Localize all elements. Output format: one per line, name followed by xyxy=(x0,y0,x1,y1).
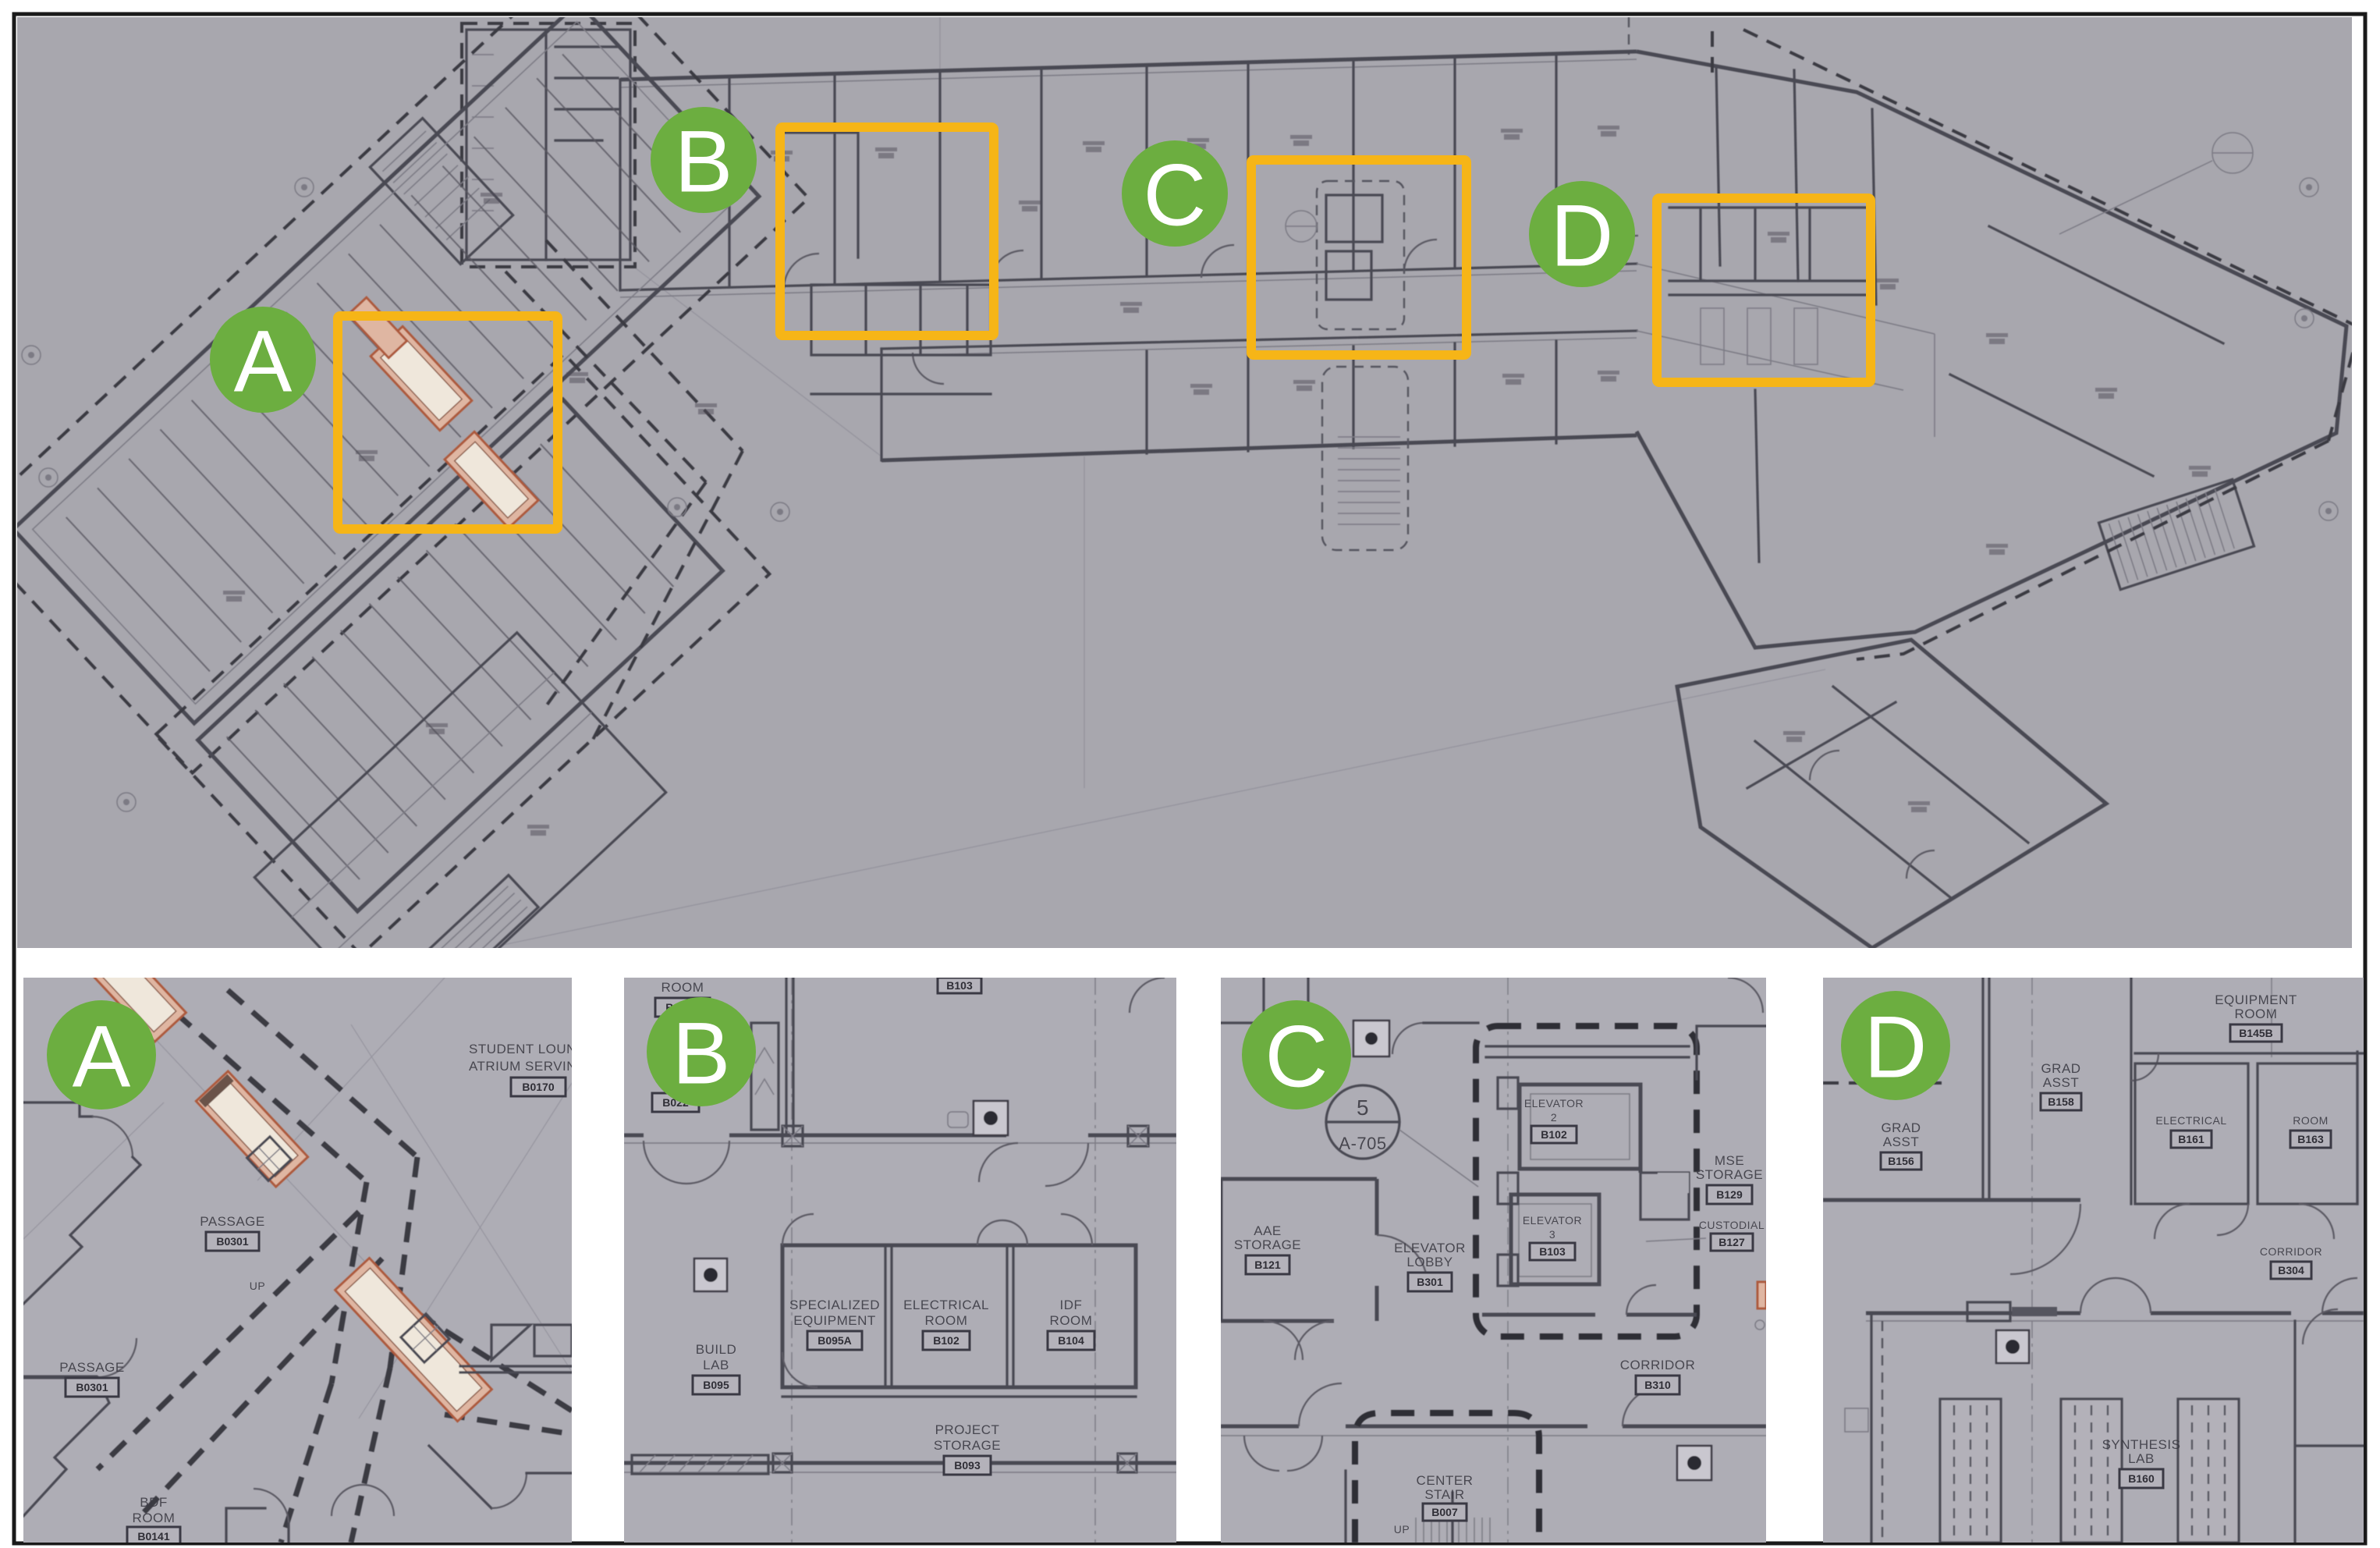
room-tag-b129: B129 xyxy=(1707,1185,1752,1204)
room-label-project-2: STORAGE xyxy=(934,1438,1001,1453)
region-letter-c: C xyxy=(1144,146,1207,243)
detail-panel-a: STUDENT LOUN ATRIUM SERVIN B0170 PASSAGE… xyxy=(23,944,576,1546)
room-tag-b104: B104 xyxy=(1048,1331,1094,1350)
svg-text:B161: B161 xyxy=(2178,1133,2204,1145)
svg-text:B095A: B095A xyxy=(818,1334,852,1347)
svg-text:B0170: B0170 xyxy=(522,1081,554,1093)
room-tag-b103-cut: B103 xyxy=(938,978,981,993)
svg-text:B304: B304 xyxy=(2278,1264,2304,1276)
room-tag-b304: B304 xyxy=(2271,1262,2311,1279)
room-label-synth-1: SYNTHESIS xyxy=(2102,1437,2181,1452)
callout-number: 5 xyxy=(1357,1095,1369,1120)
room-tag-b301: B301 xyxy=(1408,1273,1452,1291)
floor-plan-figure: A B C D xyxy=(0,0,2380,1548)
room-label-electrical-d: ELECTRICAL xyxy=(2155,1114,2226,1127)
svg-text:B102: B102 xyxy=(1541,1128,1567,1141)
svg-text:B0301: B0301 xyxy=(216,1235,248,1248)
svg-text:B127: B127 xyxy=(1718,1236,1745,1248)
room-tag-b095a: B095A xyxy=(807,1331,862,1350)
room-label-grad2-1: GRAD xyxy=(2041,1061,2080,1076)
room-label-bdf-2: ROOM xyxy=(133,1511,176,1525)
room-label-elevator2: ELEVATOR xyxy=(1524,1097,1584,1110)
svg-text:B103: B103 xyxy=(1539,1245,1566,1258)
room-tag-elev2: B102 xyxy=(1531,1126,1577,1143)
room-label-project-1: PROJECT xyxy=(935,1422,1000,1437)
svg-text:B145B: B145B xyxy=(2239,1027,2273,1039)
svg-text:B093: B093 xyxy=(954,1459,981,1472)
room-label-grad1-1: GRAD xyxy=(1881,1120,1921,1135)
room-tag-b161: B161 xyxy=(2171,1131,2212,1148)
room-label-electrical-2: ROOM xyxy=(925,1313,968,1328)
room-tag-passage-lower: B0301 xyxy=(66,1378,119,1397)
region-marker-b[interactable]: B xyxy=(651,107,757,213)
svg-text:B129: B129 xyxy=(1716,1188,1743,1201)
svg-text:B156: B156 xyxy=(1888,1155,1914,1167)
room-label-room-right: ROOM xyxy=(2293,1114,2329,1127)
room-label-elevator3-num: 3 xyxy=(1549,1228,1555,1241)
room-tag-b310: B310 xyxy=(1636,1376,1679,1394)
room-tag-b093: B093 xyxy=(944,1456,991,1475)
room-label-stair-2: STAIR xyxy=(1424,1487,1464,1502)
svg-text:B121: B121 xyxy=(1254,1259,1281,1271)
room-tag-b0170: B0170 xyxy=(511,1078,566,1096)
room-label-electrical-1: ELECTRICAL xyxy=(903,1298,989,1312)
room-label-build-lab-1: BUILD xyxy=(696,1342,737,1357)
room-label-mse-1: MSE xyxy=(1715,1153,1744,1168)
panel-marker-a[interactable]: A xyxy=(47,1000,156,1110)
svg-text:B103: B103 xyxy=(946,979,973,992)
region-marker-a[interactable]: A xyxy=(210,307,316,413)
room-label-specialized-2: EQUIPMENT xyxy=(793,1313,876,1328)
room-tag-elev3: B103 xyxy=(1530,1243,1575,1260)
room-tag-b121: B121 xyxy=(1246,1255,1289,1274)
room-tag-b007: B007 xyxy=(1423,1504,1467,1521)
svg-text:B160: B160 xyxy=(2128,1472,2155,1485)
panel-marker-b[interactable]: B xyxy=(647,997,756,1106)
panel-letter-b: B xyxy=(672,1004,731,1102)
region-letter-a: A xyxy=(234,312,293,410)
room-label-aae-1: AAE xyxy=(1254,1223,1282,1238)
svg-text:B163: B163 xyxy=(2297,1133,2324,1145)
overview-floor-plan: A B C D xyxy=(0,0,2360,1037)
room-label-grad1-2: ASST xyxy=(1883,1134,1919,1149)
svg-text:B095: B095 xyxy=(703,1379,729,1391)
svg-text:B310: B310 xyxy=(1644,1379,1671,1391)
room-label-idf-1: IDF xyxy=(1060,1298,1083,1312)
svg-text:B0301: B0301 xyxy=(76,1381,108,1394)
room-label-grad2-2: ASST xyxy=(2043,1075,2079,1090)
room-tag-b102: B102 xyxy=(923,1331,970,1350)
room-label-elevator3: ELEVATOR xyxy=(1523,1214,1582,1227)
room-label-corridor-d: CORRIDOR xyxy=(2260,1245,2322,1258)
room-label-atrium-serving: ATRIUM SERVIN xyxy=(469,1059,576,1074)
room-tag-b156: B156 xyxy=(1881,1152,1921,1170)
room-tag-b127: B127 xyxy=(1711,1234,1753,1251)
room-tag-b158: B158 xyxy=(2041,1093,2081,1110)
svg-text:B104: B104 xyxy=(1058,1334,1084,1347)
room-label-specialized-1: SPECIALIZED xyxy=(789,1298,880,1312)
region-letter-d: D xyxy=(1551,186,1614,284)
room-label-bdf-1: BDF xyxy=(140,1495,168,1510)
room-tag-b163: B163 xyxy=(2290,1131,2331,1148)
room-label-student-lounge: STUDENT LOUN xyxy=(469,1042,576,1056)
panel-letter-a: A xyxy=(73,1007,131,1105)
room-label-stair-1: CENTER xyxy=(1417,1473,1474,1488)
room-label-aae-2: STORAGE xyxy=(1234,1237,1301,1252)
detail-panel-b: ROOM B022A B022 B103 SPECIALIZED EQUIPME… xyxy=(624,978,1176,1543)
room-label-top-room: ROOM xyxy=(662,980,704,995)
room-label-custodial: CUSTODIAL xyxy=(1699,1219,1765,1231)
panel-letter-c: C xyxy=(1265,1007,1328,1105)
floor-plan-canvas: A B C D xyxy=(0,0,2380,1548)
room-label-elevator2-num: 2 xyxy=(1551,1111,1557,1124)
callout-sheet: A-705 xyxy=(1339,1134,1386,1153)
up-label: UP xyxy=(250,1280,265,1292)
region-marker-d[interactable]: D xyxy=(1529,181,1635,287)
room-label-passage-lower: PASSAGE xyxy=(59,1360,125,1375)
room-label-idf-2: ROOM xyxy=(1050,1313,1093,1328)
room-label-passage-upper: PASSAGE xyxy=(200,1214,265,1229)
room-tag-b145b: B145B xyxy=(2230,1024,2282,1042)
room-label-synth-2: LAB xyxy=(2128,1451,2155,1466)
room-tag-passage-upper: B0301 xyxy=(206,1232,259,1251)
room-label-mse-2: STORAGE xyxy=(1696,1167,1763,1182)
room-label-corridor: CORRIDOR xyxy=(1620,1358,1696,1372)
svg-text:B102: B102 xyxy=(933,1334,959,1347)
panel-letter-d: D xyxy=(1864,998,1928,1095)
svg-text:B158: B158 xyxy=(2048,1095,2074,1108)
room-label-build-lab-2: LAB xyxy=(703,1358,729,1372)
room-tag-b095: B095 xyxy=(693,1376,740,1394)
region-marker-c[interactable]: C xyxy=(1122,140,1228,247)
region-letter-b: B xyxy=(675,112,733,210)
panel-marker-d[interactable]: D xyxy=(1841,991,1950,1100)
room-label-lobby-2: LOBBY xyxy=(1406,1255,1452,1269)
up-label-c: UP xyxy=(1394,1523,1410,1536)
panel-marker-c[interactable]: C xyxy=(1242,1000,1351,1110)
room-label-equip-2: ROOM xyxy=(2235,1007,2278,1021)
detail-panel-c: 5 A-705 ELEVATOR 2 B102 ELEVATOR 3 B103 … xyxy=(1221,978,1766,1543)
detail-panel-d: GRAD ASST B156 GRAD ASST B158 EQUIPMENT … xyxy=(1823,978,2364,1543)
svg-text:B301: B301 xyxy=(1417,1276,1443,1288)
room-label-lobby-1: ELEVATOR xyxy=(1394,1241,1466,1255)
room-label-equip-1: EQUIPMENT xyxy=(2215,992,2297,1007)
svg-text:B007: B007 xyxy=(1431,1506,1458,1518)
svg-text:B0141: B0141 xyxy=(137,1530,169,1543)
room-tag-b160: B160 xyxy=(2119,1469,2163,1488)
